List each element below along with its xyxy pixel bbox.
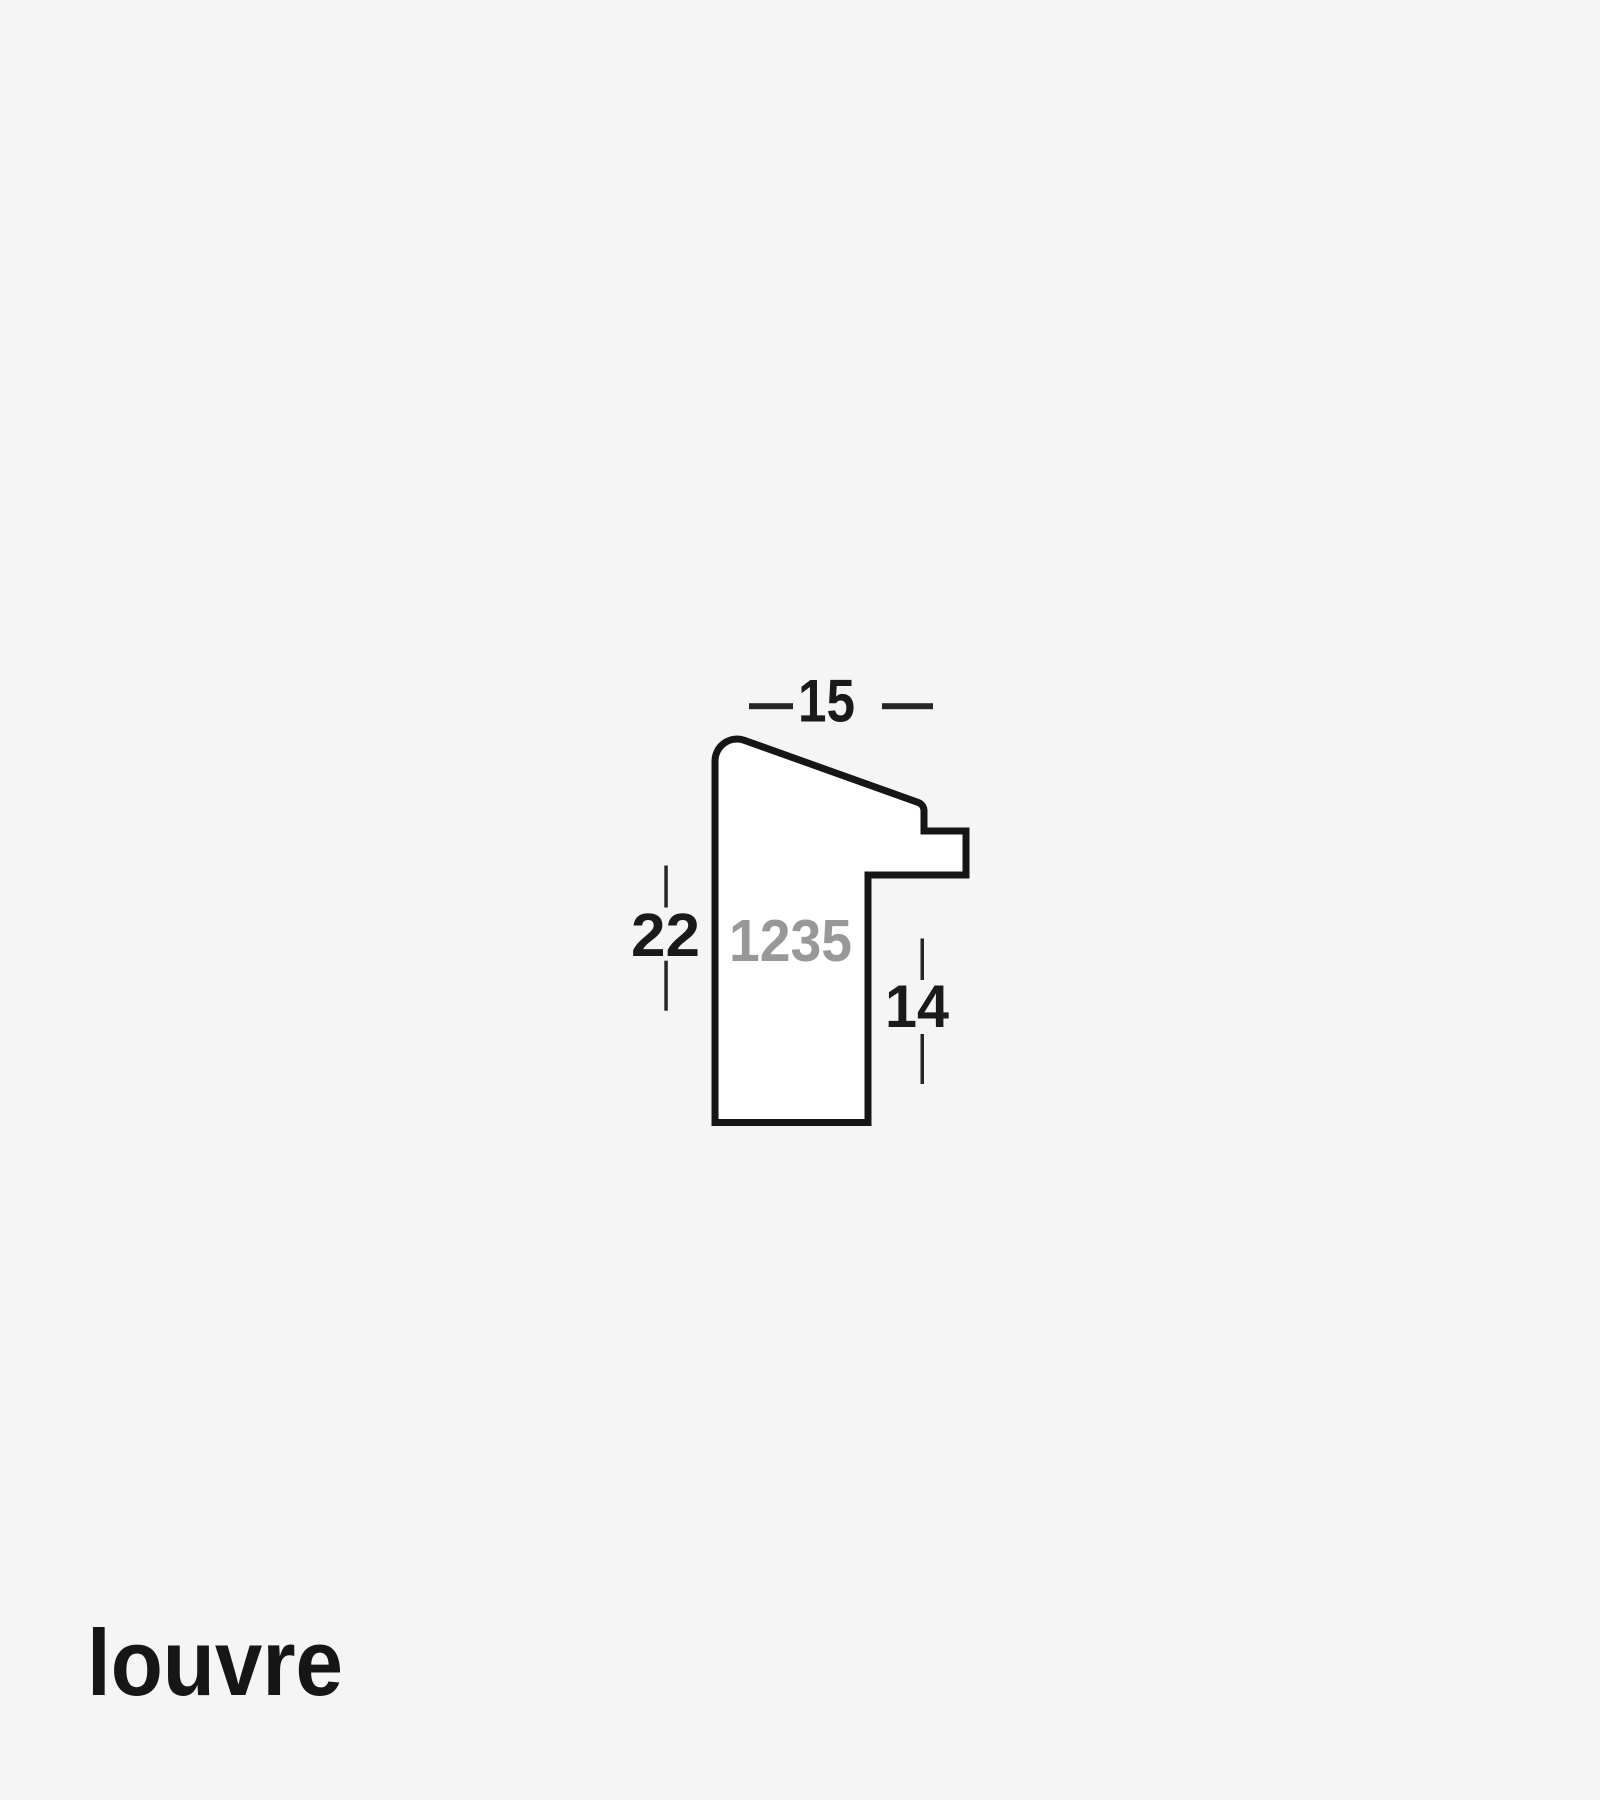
svg-text:14: 14 [885, 973, 950, 1040]
svg-text:1235: 1235 [729, 908, 852, 974]
svg-text:louvre: louvre [87, 1610, 343, 1715]
svg-text:15: 15 [798, 668, 855, 735]
svg-text:22: 22 [631, 901, 700, 969]
